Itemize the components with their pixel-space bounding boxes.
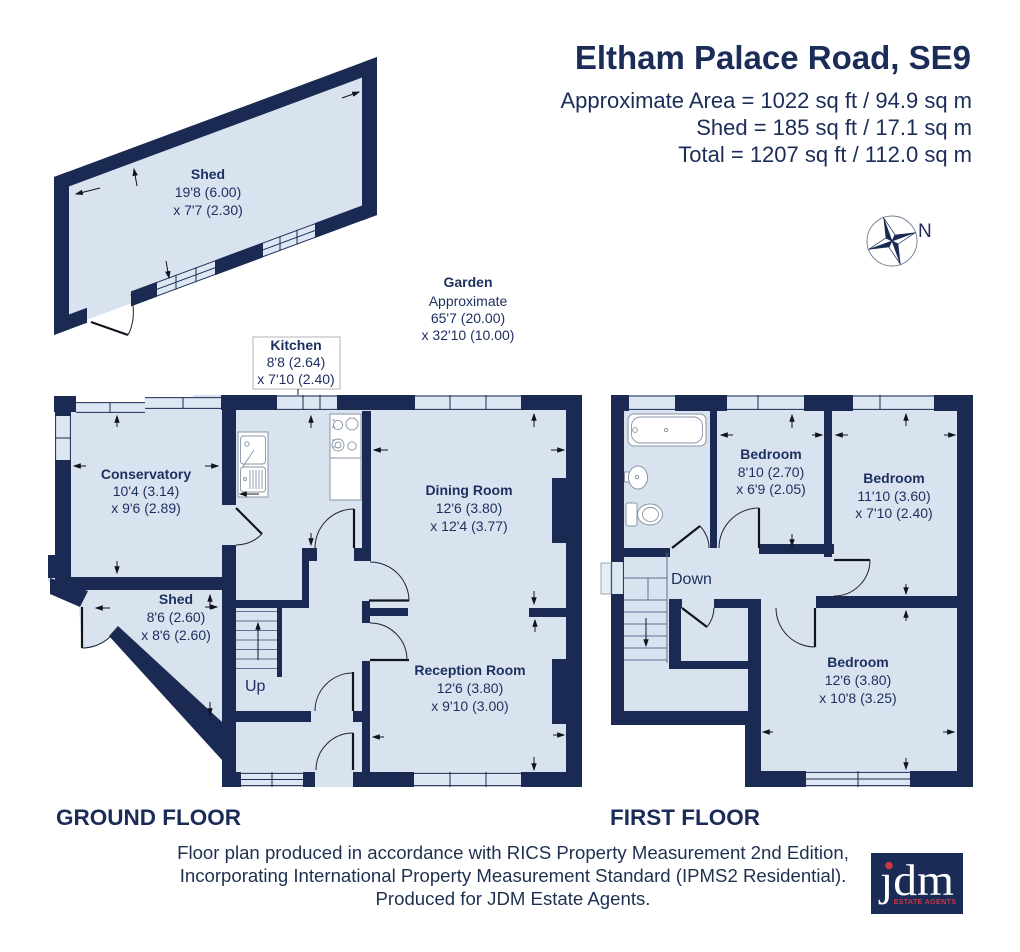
svg-text:12'6 (3.80): 12'6 (3.80) (825, 672, 892, 688)
svg-text:Shed: Shed (191, 166, 225, 182)
svg-text:19'8 (6.00): 19'8 (6.00) (175, 184, 242, 200)
svg-text:Reception Room: Reception Room (414, 662, 525, 678)
svg-text:Up: Up (245, 678, 266, 695)
svg-text:FIRST FLOOR: FIRST FLOOR (610, 805, 760, 830)
svg-text:ESTATE AGENTS: ESTATE AGENTS (894, 897, 957, 906)
svg-text:x 32'10 (10.00): x 32'10 (10.00) (422, 327, 515, 343)
svg-text:x 12'4 (3.77): x 12'4 (3.77) (430, 518, 507, 534)
svg-text:Down: Down (671, 571, 712, 588)
svg-text:x 9'6 (2.89): x 9'6 (2.89) (111, 500, 181, 516)
svg-text:Shed: Shed (159, 591, 193, 607)
svg-text:Bedroom: Bedroom (740, 446, 801, 462)
svg-text:Approximate Area = 1022 sq ft: Approximate Area = 1022 sq ft / 94.9 sq … (560, 88, 972, 113)
svg-text:11'10 (3.60): 11'10 (3.60) (857, 488, 930, 504)
svg-text:GROUND FLOOR: GROUND FLOOR (56, 805, 241, 830)
svg-text:10'4 (3.14): 10'4 (3.14) (113, 483, 180, 499)
svg-text:x 6'9 (2.05): x 6'9 (2.05) (736, 481, 806, 497)
svg-text:N: N (918, 221, 932, 242)
svg-text:x 7'10 (2.40): x 7'10 (2.40) (855, 505, 932, 521)
svg-text:Total = 1207 sq ft / 112.0 sq: Total = 1207 sq ft / 112.0 sq m (678, 142, 972, 167)
svg-text:x 7'10 (2.40): x 7'10 (2.40) (257, 371, 334, 387)
svg-text:Incorporating International Pr: Incorporating International Property Mea… (180, 865, 847, 886)
svg-text:Garden: Garden (443, 274, 492, 290)
svg-text:x 10'8 (3.25): x 10'8 (3.25) (819, 690, 896, 706)
svg-text:Eltham Palace Road, SE9: Eltham Palace Road, SE9 (575, 39, 971, 76)
svg-text:8'10 (2.70): 8'10 (2.70) (738, 464, 805, 480)
svg-text:x 7'7 (2.30): x 7'7 (2.30) (173, 202, 243, 218)
svg-text:Approximate: Approximate (429, 293, 508, 309)
svg-text:65'7 (20.00): 65'7 (20.00) (431, 310, 505, 326)
svg-text:x 9'10 (3.00): x 9'10 (3.00) (431, 698, 508, 714)
svg-text:Conservatory: Conservatory (101, 466, 191, 482)
svg-text:Bedroom: Bedroom (827, 654, 888, 670)
svg-text:Produced for JDM Estate Agents: Produced for JDM Estate Agents. (376, 888, 651, 909)
svg-text:8'8 (2.64): 8'8 (2.64) (267, 354, 326, 370)
svg-text:Dining Room: Dining Room (425, 482, 512, 498)
svg-text:8'6 (2.60): 8'6 (2.60) (147, 609, 206, 625)
svg-text:Kitchen: Kitchen (270, 337, 321, 353)
svg-text:Bedroom: Bedroom (863, 470, 924, 486)
svg-text:Shed = 185 sq ft / 17.1 sq m: Shed = 185 sq ft / 17.1 sq m (696, 115, 972, 140)
svg-text:Floor plan produced in accorda: Floor plan produced in accordance with R… (177, 842, 849, 863)
svg-text:12'6 (3.80): 12'6 (3.80) (437, 680, 504, 696)
svg-text:x 8'6 (2.60): x 8'6 (2.60) (141, 627, 211, 643)
svg-text:12'6 (3.80): 12'6 (3.80) (436, 500, 503, 516)
